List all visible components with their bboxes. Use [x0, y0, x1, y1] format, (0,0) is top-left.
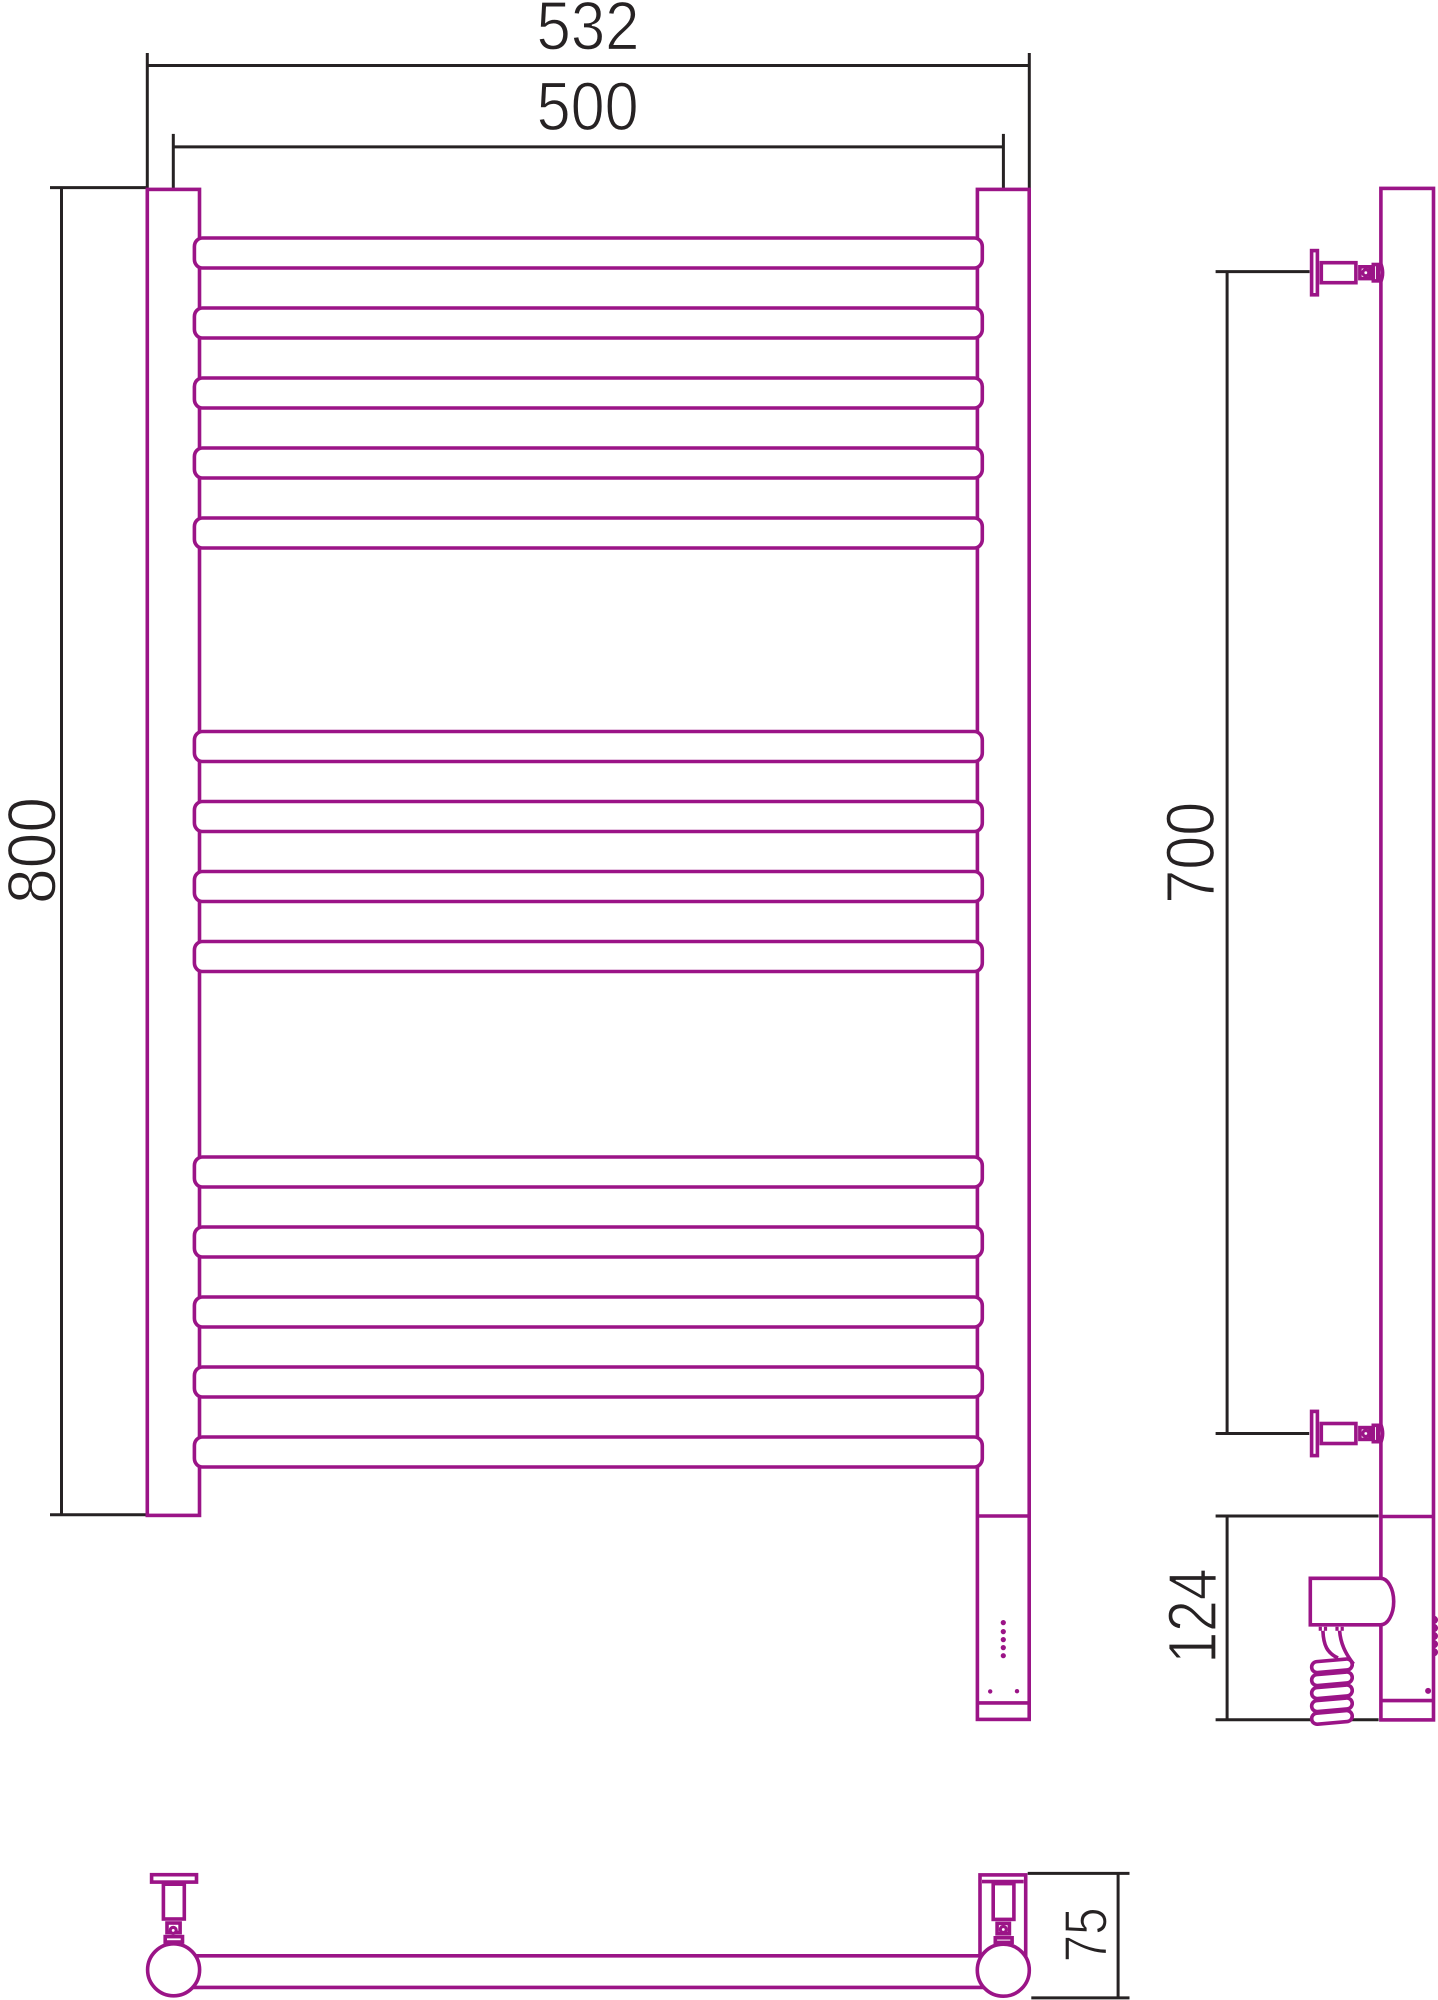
svg-text:532: 532 — [537, 0, 640, 65]
svg-text:500: 500 — [537, 68, 639, 145]
svg-text:700: 700 — [1152, 802, 1229, 904]
svg-text:75: 75 — [1053, 1907, 1120, 1962]
svg-text:800: 800 — [0, 797, 71, 904]
svg-text:124: 124 — [1154, 1569, 1231, 1664]
